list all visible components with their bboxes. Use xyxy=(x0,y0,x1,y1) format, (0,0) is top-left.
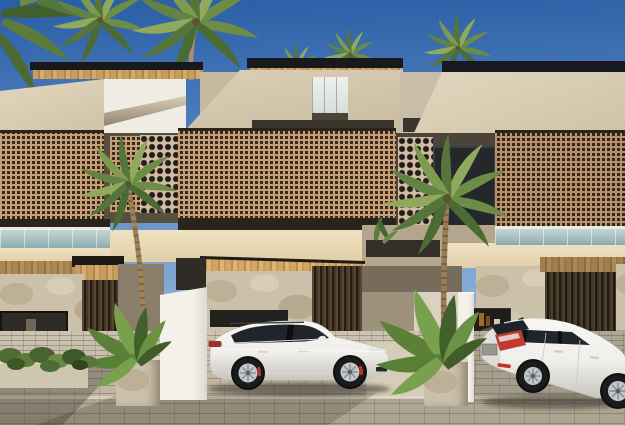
foreground-palm-center xyxy=(380,130,514,332)
shrub-row xyxy=(0,347,97,372)
architectural-render-scene xyxy=(0,0,625,425)
banana-plant xyxy=(84,303,172,397)
banana-plant xyxy=(376,289,487,408)
foreground-palm-left xyxy=(73,129,182,308)
foreground-vegetation xyxy=(0,0,625,425)
parapet-plant-tufts xyxy=(368,217,399,246)
